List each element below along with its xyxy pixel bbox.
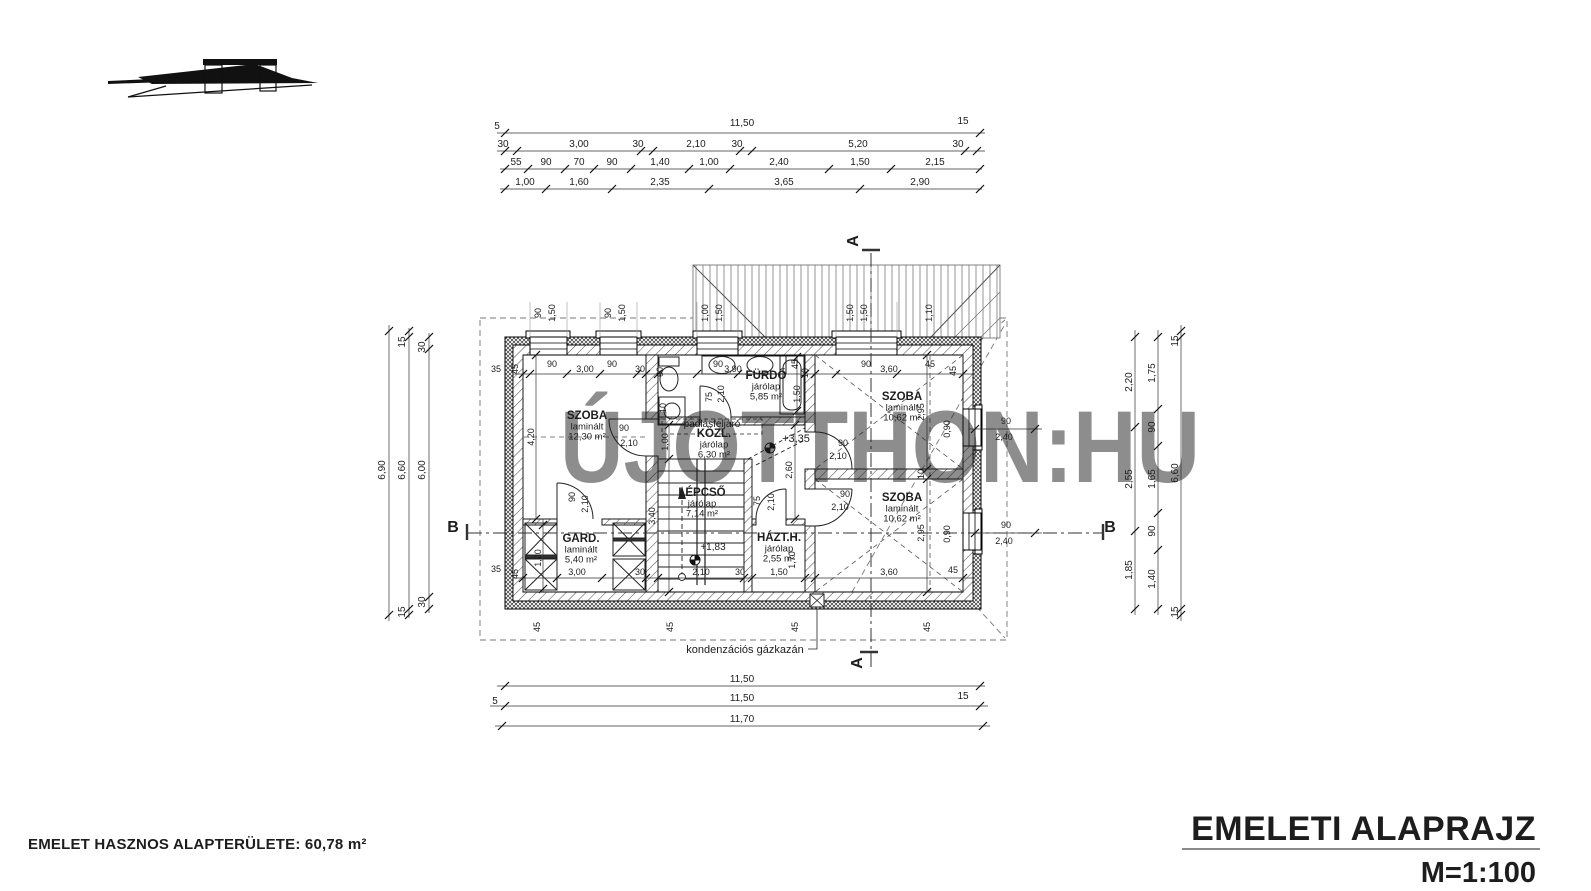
dim-label: 1,40 xyxy=(1147,569,1158,589)
dim-label: 45 xyxy=(532,622,542,632)
dim-label: 3,00 xyxy=(576,364,594,374)
dim-label: 30 xyxy=(417,341,428,353)
dim-label: 2,20 xyxy=(1124,372,1135,392)
logo-underline xyxy=(128,85,312,97)
company-logo xyxy=(108,59,318,97)
room-name: FÜRDŐ xyxy=(746,369,787,382)
level-marker-icon xyxy=(690,555,700,565)
dim-label: 90 xyxy=(547,359,557,369)
dim-label: 1,50 xyxy=(850,157,870,168)
dim-label: 30 xyxy=(632,139,644,150)
dim-label: 1,85 xyxy=(1124,560,1135,580)
dim-label: 90 xyxy=(1001,520,1011,530)
dim-label: 1,70 xyxy=(787,551,797,569)
dim-label: 45 xyxy=(665,622,675,632)
dim-label: 45 xyxy=(790,359,800,369)
window-top-3 xyxy=(693,331,742,355)
dim-label: 30 xyxy=(497,139,509,150)
dim-label: 90 xyxy=(861,359,871,369)
dim-label: 3,00 xyxy=(568,567,586,577)
window-right-2 xyxy=(963,509,982,554)
dim-label: 15 xyxy=(397,606,408,618)
dim-label: 10 xyxy=(800,368,810,378)
dim-label: 2,10 xyxy=(686,139,706,150)
dim-label: 45 xyxy=(922,622,932,632)
dim-label: 1,50 xyxy=(617,304,627,322)
title-rule xyxy=(1182,848,1540,850)
dim-label: 5,20 xyxy=(848,139,868,150)
room-area: 5,40 m² xyxy=(565,555,597,566)
dim-label: 1,50 xyxy=(714,304,724,322)
dim-label: 60 xyxy=(655,367,665,377)
window-top-2 xyxy=(596,331,641,355)
dim-label: 15 xyxy=(397,336,408,348)
dim-label: 30 xyxy=(635,567,645,577)
dim-label: 2,40 xyxy=(769,157,789,168)
dim-label: 15 xyxy=(957,116,969,127)
dim-label: 1,50 xyxy=(547,304,557,322)
dim-label: 6,00 xyxy=(417,460,428,480)
dim-label: 45 xyxy=(925,359,935,369)
annotation-label: kondenzációs gázkazán xyxy=(686,644,803,656)
dim-label: 90 xyxy=(606,157,618,168)
dim-label: 6,90 xyxy=(377,460,388,480)
dim-label: B xyxy=(447,519,459,536)
dim-label: B xyxy=(1104,519,1116,536)
dim-label: 90 xyxy=(1147,525,1158,537)
dim-label: A xyxy=(849,657,866,669)
dim-label: 30 xyxy=(417,596,428,608)
dim-label: A xyxy=(845,235,862,247)
dim-label: 2,90 xyxy=(910,177,930,188)
dim-label: 2,10 xyxy=(692,567,710,577)
dim-label: 3,65 xyxy=(774,177,794,188)
dim-label: 45 xyxy=(510,569,520,579)
dim-label: 11,50 xyxy=(730,674,755,685)
dim-label: 15 xyxy=(1170,606,1181,618)
roof-hatch xyxy=(693,265,1000,338)
drawing-scale: M=1:100 xyxy=(1191,857,1536,890)
floor-plan-drawing: SZOBAlaminált12,30 m²GARD.laminált5,40 m… xyxy=(0,0,1591,891)
dim-label: 2,15 xyxy=(925,157,945,168)
dim-label: 15 xyxy=(957,691,969,702)
dim-label: 6,60 xyxy=(397,460,408,480)
dim-label: 1,60 xyxy=(569,177,589,188)
dim-label: 11,50 xyxy=(730,118,755,129)
room-name: HÁZT.H. xyxy=(757,531,801,544)
dim-label: 35 xyxy=(491,364,501,374)
dim-label: 45 xyxy=(948,366,958,376)
logo-roof-bar xyxy=(203,59,277,65)
dim-label: 45 xyxy=(510,364,520,374)
dim-label: 11,50 xyxy=(730,693,755,704)
dim-label: 4,20 xyxy=(526,428,536,446)
window-top-1 xyxy=(526,331,570,355)
dim-label: 1,50 xyxy=(859,304,869,322)
dim-label: 1,00 xyxy=(515,177,535,188)
dim-label: 1,00 xyxy=(699,157,719,168)
dim-label: 5 xyxy=(492,696,498,707)
room-area: 7,14 m² xyxy=(686,509,718,520)
dim-label: 30 xyxy=(735,567,745,577)
dim-label: 1,75 xyxy=(1147,363,1158,383)
dim-label: 3,60 xyxy=(880,364,898,374)
dim-label: 35 xyxy=(491,564,501,574)
dim-label: 1,50 xyxy=(770,567,788,577)
dim-label: 2,95 xyxy=(916,524,926,542)
dim-label: 70 xyxy=(573,157,585,168)
room-area: 10,62 m² xyxy=(883,514,921,525)
dim-label: 90 xyxy=(603,308,613,318)
watermark: ÚJOTTHON:HU xyxy=(560,390,1200,504)
dim-label: 90 xyxy=(713,359,723,369)
dim-label: 3,40 xyxy=(647,507,657,525)
drawing-title: EMELETI ALAPRAJZ xyxy=(1191,810,1536,849)
window-top-4 xyxy=(832,331,901,355)
dim-label: 0,90 xyxy=(942,525,952,543)
dim-label: +1,83 xyxy=(700,542,726,553)
dim-label: 30 xyxy=(635,364,645,374)
dim-label: 45 xyxy=(948,565,958,575)
boiler xyxy=(808,594,824,649)
toilet-tank xyxy=(659,357,679,366)
boiler-leader-line xyxy=(808,609,817,649)
dim-label: 90 xyxy=(533,308,543,318)
dim-label: 1,20 xyxy=(533,549,543,567)
dim-label: 3,60 xyxy=(880,567,898,577)
dim-label: 1,00 xyxy=(700,304,710,322)
dim-label: 90 xyxy=(540,157,552,168)
dim-label: 90 xyxy=(607,359,617,369)
dim-label: 3,90 xyxy=(724,364,742,374)
room-label: GARD.laminált5,40 m² xyxy=(562,533,599,566)
dim-label: 2,40 xyxy=(995,536,1013,546)
dim-label: 1,50 xyxy=(845,304,855,322)
dim-label: 45 xyxy=(790,622,800,632)
dim-label: 5 xyxy=(494,121,500,132)
dim-label: 2,35 xyxy=(650,177,670,188)
room-name: GARD. xyxy=(562,533,599,545)
title-block: EMELETI ALAPRAJZ M=1:100 xyxy=(1191,810,1536,890)
dim-label: 1,10 xyxy=(924,304,934,322)
dim-label: 30 xyxy=(731,139,743,150)
floor-area-note: EMELET HASZNOS ALAPTERÜLETE: 60,78 m² xyxy=(28,836,367,853)
dim-label: 3,00 xyxy=(569,139,589,150)
dim-label: 30 xyxy=(952,139,964,150)
dim-label: 11,70 xyxy=(730,714,755,725)
drawing-sheet: SZOBAlaminált12,30 m²GARD.laminált5,40 m… xyxy=(0,0,1591,891)
dim-label: 1,40 xyxy=(650,157,670,168)
dim-label: 15 xyxy=(1170,335,1181,347)
dim-label: 55 xyxy=(510,157,522,168)
